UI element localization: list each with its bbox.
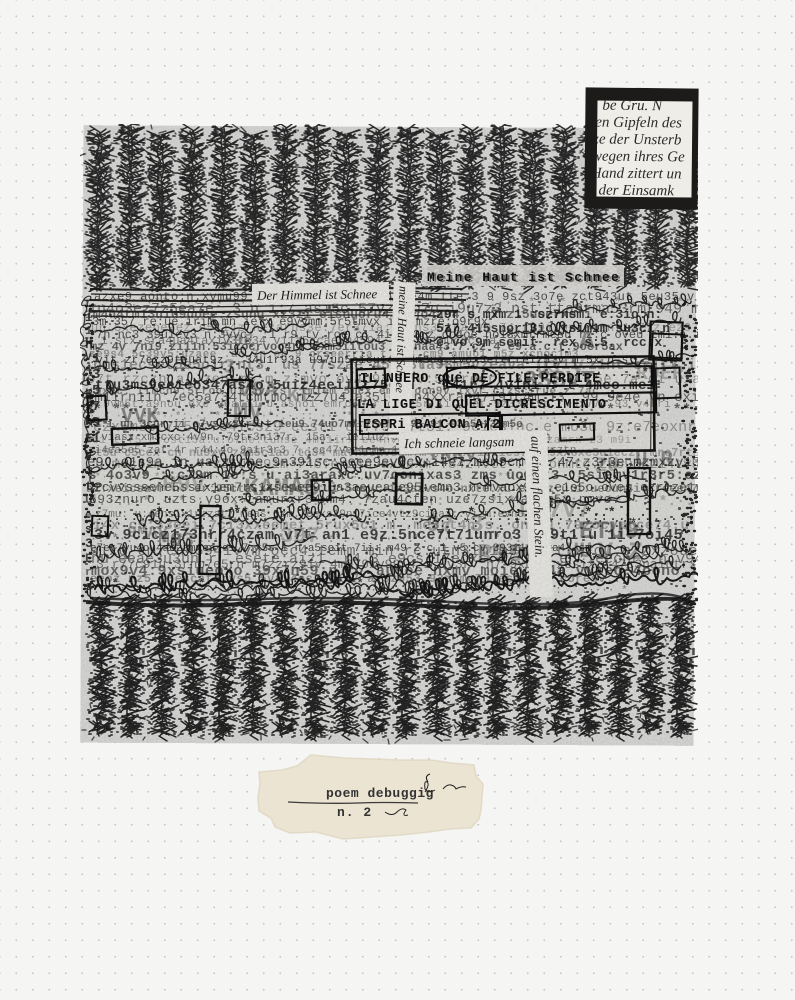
svg-text:ze der Unsterb: ze der Unsterb [592, 131, 682, 148]
svg-text:en Gipfeln des: en Gipfeln des [595, 115, 682, 132]
svg-text:Hand zittert un: Hand zittert un [590, 165, 682, 182]
svg-text:n. 2: n. 2 [337, 805, 372, 820]
svg-text:wegen ihres Ge: wegen ihres Ge [592, 148, 685, 165]
svg-text:poem debuggig: poem debuggig [326, 786, 434, 801]
